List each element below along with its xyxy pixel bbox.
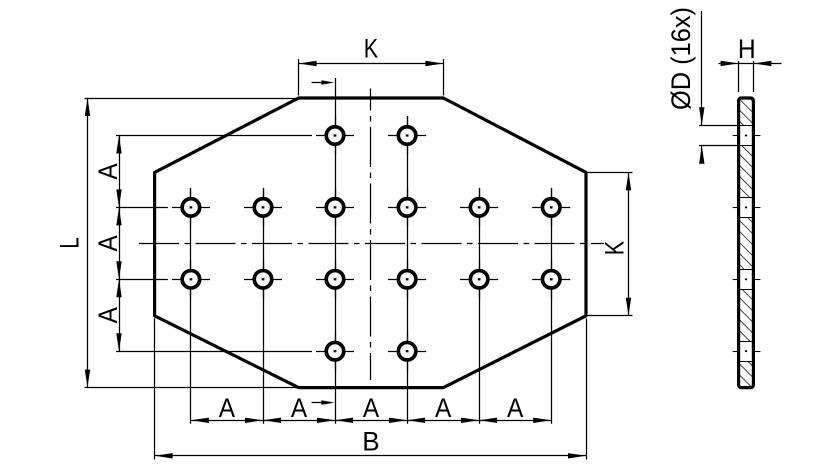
svg-text:ØD (16x): ØD (16x) — [666, 7, 696, 110]
svg-text:H: H — [738, 34, 756, 64]
svg-text:K: K — [364, 33, 378, 63]
svg-text:A: A — [219, 393, 235, 423]
svg-text:K: K — [600, 241, 630, 255]
svg-text:A: A — [507, 393, 523, 423]
svg-text:L: L — [55, 237, 85, 249]
svg-text:B: B — [362, 426, 379, 456]
svg-text:A: A — [435, 393, 451, 423]
svg-text:A: A — [93, 235, 123, 251]
svg-text:A: A — [291, 393, 307, 423]
svg-text:A: A — [93, 307, 123, 323]
svg-text:A: A — [363, 393, 379, 423]
svg-text:A: A — [93, 163, 123, 179]
